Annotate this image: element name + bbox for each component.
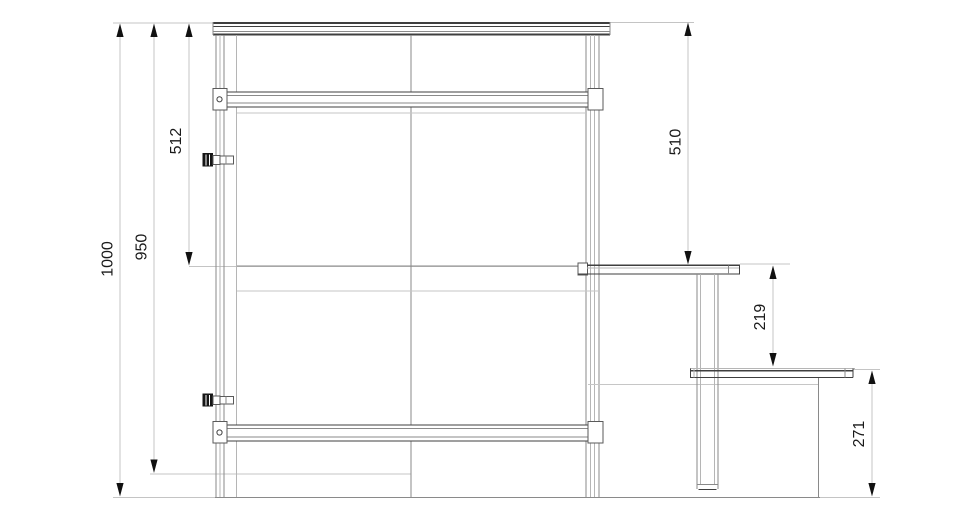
technical-drawing-canvas: 1000 950 512 510 219 271 bbox=[0, 0, 980, 522]
dimension-label: 950 bbox=[134, 234, 151, 261]
arrow-down-icon bbox=[868, 483, 875, 497]
panel-lines bbox=[237, 113, 818, 385]
lower-rail-endcap bbox=[588, 422, 603, 444]
socket-head-screw-icon bbox=[203, 394, 234, 407]
elevation-drawing: 1000 950 512 510 219 271 bbox=[0, 0, 980, 522]
dimension-label: 219 bbox=[752, 304, 769, 331]
arrow-up-icon bbox=[150, 24, 157, 38]
dimension-step-offset: 219 bbox=[752, 266, 776, 367]
dimension-upper-section-right: 510 bbox=[668, 23, 692, 265]
arrow-down-icon bbox=[116, 483, 123, 497]
dimension-frame-height: 950 bbox=[134, 24, 158, 474]
upper-step-left-cap bbox=[578, 263, 588, 275]
dimension-upper-section-left: 512 bbox=[168, 24, 192, 266]
arrow-down-icon bbox=[769, 353, 776, 367]
upper-rail-endcap bbox=[588, 89, 603, 111]
dimension-label: 512 bbox=[168, 128, 185, 155]
arrow-down-icon bbox=[185, 252, 192, 266]
arrow-up-icon bbox=[868, 371, 875, 385]
dimension-label: 510 bbox=[668, 129, 685, 156]
arrow-up-icon bbox=[769, 266, 776, 280]
upper-rail bbox=[213, 89, 603, 111]
dimension-label: 1000 bbox=[100, 241, 117, 277]
arrow-up-icon bbox=[185, 24, 192, 38]
arrow-up-icon bbox=[116, 24, 123, 38]
lower-rail-body bbox=[216, 425, 603, 441]
bolt-hole-icon bbox=[217, 97, 222, 102]
bolt-hole-icon bbox=[217, 430, 222, 435]
arrow-down-icon bbox=[150, 460, 157, 474]
socket-head-screw-icon bbox=[203, 153, 234, 167]
dimension-label: 271 bbox=[851, 421, 868, 448]
step-post bbox=[697, 274, 718, 489]
upper-rail-body bbox=[216, 92, 603, 107]
arrow-up-icon bbox=[684, 23, 691, 37]
dimension-overall-height: 1000 bbox=[100, 24, 124, 497]
dimension-lower-step-height: 271 bbox=[851, 371, 875, 497]
arrow-down-icon bbox=[684, 251, 691, 265]
upper-step-shelf bbox=[578, 263, 740, 275]
lower-rail bbox=[213, 422, 603, 444]
tabletop bbox=[213, 22, 610, 35]
